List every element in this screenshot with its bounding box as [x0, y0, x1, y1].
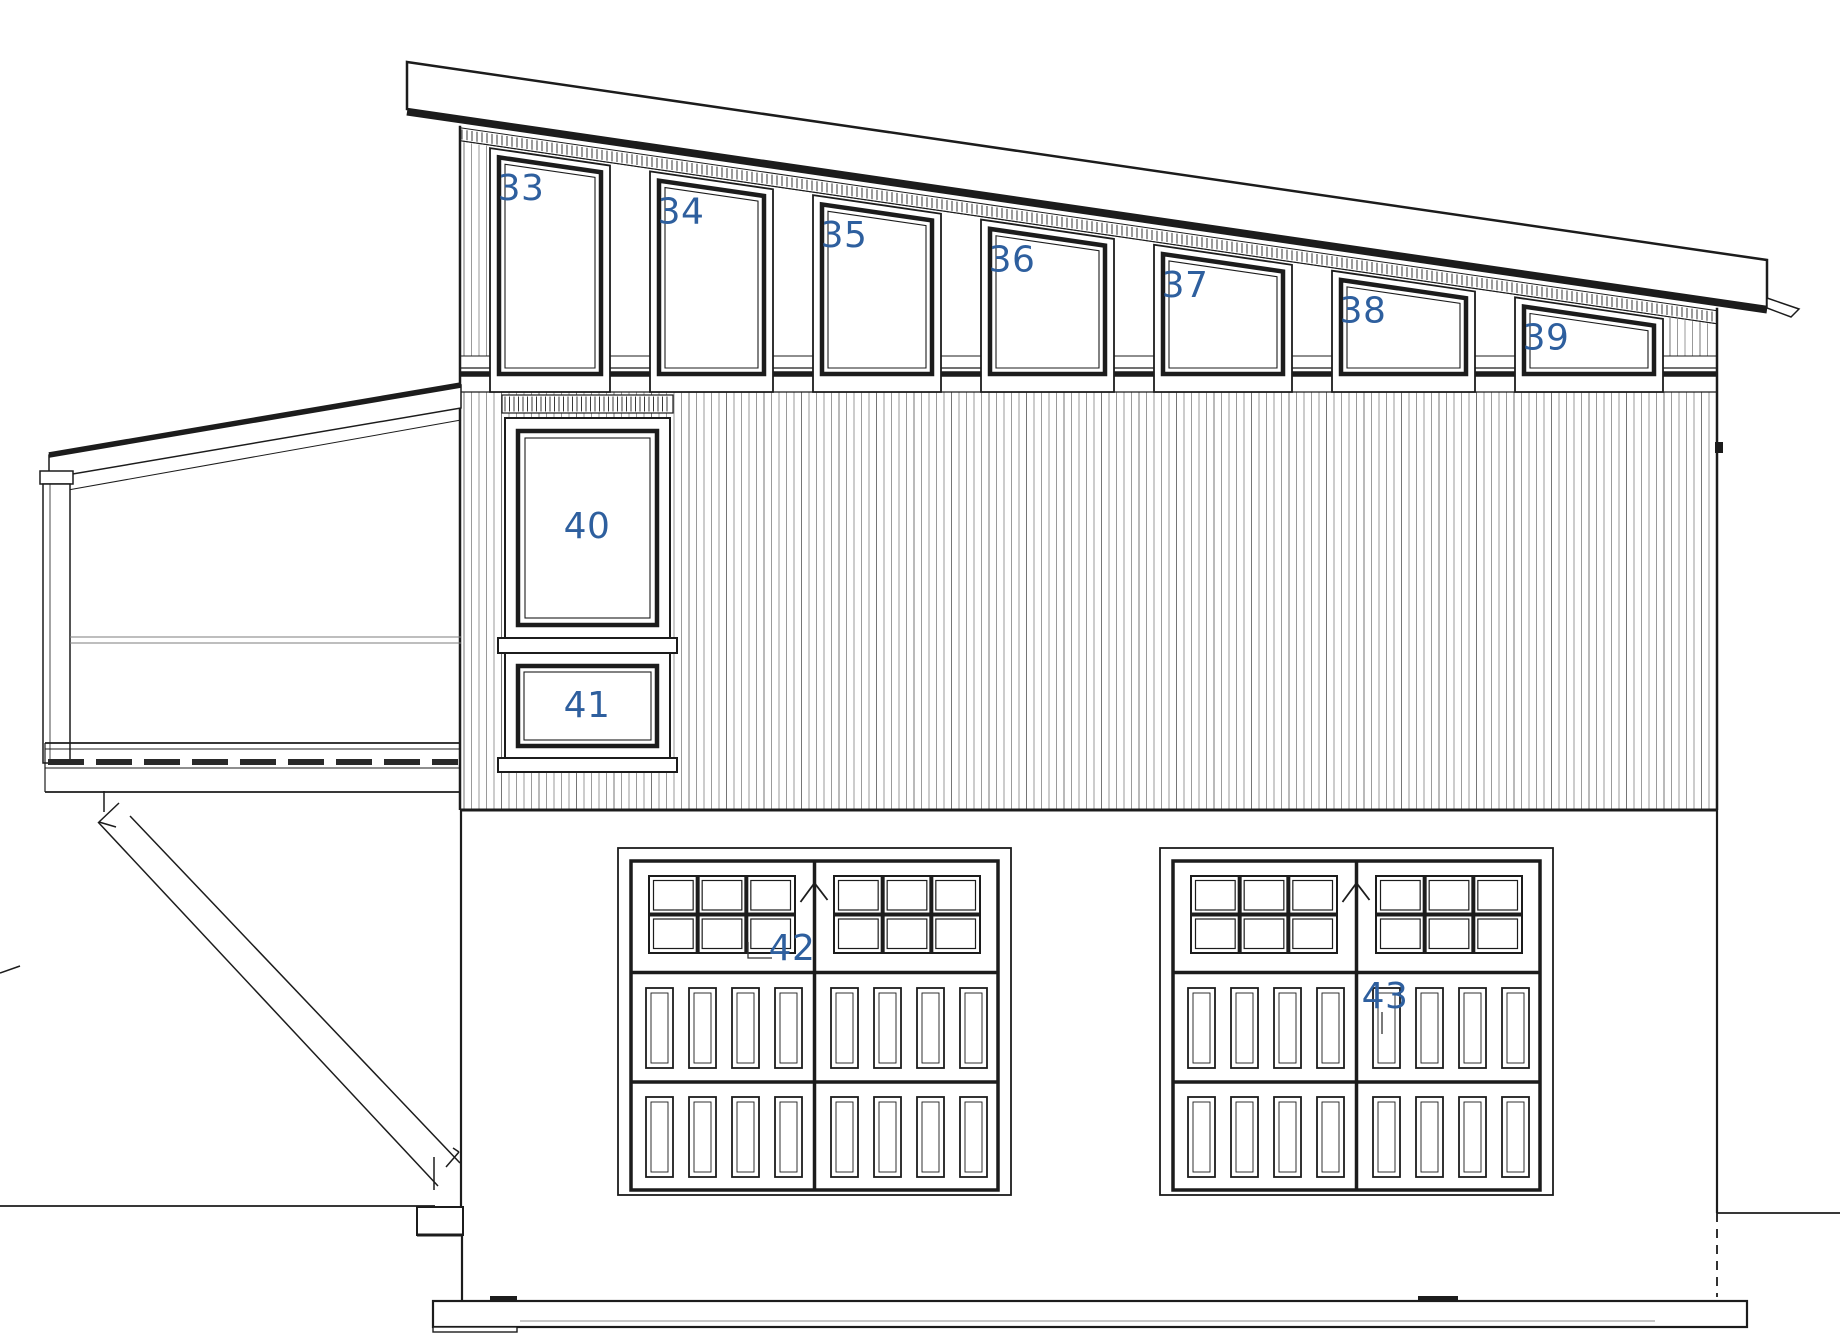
foundation-band: [433, 1301, 1747, 1327]
foundation-lip-left: [490, 1296, 517, 1301]
window-label-39: 39: [1523, 317, 1570, 358]
right-wall-fixture-mark: [1715, 442, 1723, 453]
window-label-34: 34: [658, 191, 705, 232]
window-label-41: 41: [564, 685, 611, 726]
drawing-canvas: 3334353637383940414243: [0, 0, 1840, 1340]
porch-post-cap: [40, 471, 73, 484]
window-label-37: 37: [1162, 265, 1209, 306]
door-label-42: 42: [769, 928, 816, 969]
window-label-36: 36: [989, 240, 1036, 281]
porch-footing-block: [417, 1207, 463, 1235]
window-label-40: 40: [564, 506, 611, 547]
porch-post: [43, 484, 70, 763]
window-41-sill-board: [498, 758, 677, 772]
window-label-38: 38: [1340, 291, 1387, 332]
window-label-33: 33: [498, 168, 545, 209]
door-label-43: 43: [1362, 976, 1409, 1017]
foundation-left-foot: [433, 1327, 517, 1332]
window-label-35: 35: [821, 215, 868, 256]
foundation-lip-right: [1418, 1296, 1458, 1301]
window-40-sill-board: [498, 638, 677, 653]
elevation-drawing: 3334353637383940414243: [0, 0, 1840, 1340]
